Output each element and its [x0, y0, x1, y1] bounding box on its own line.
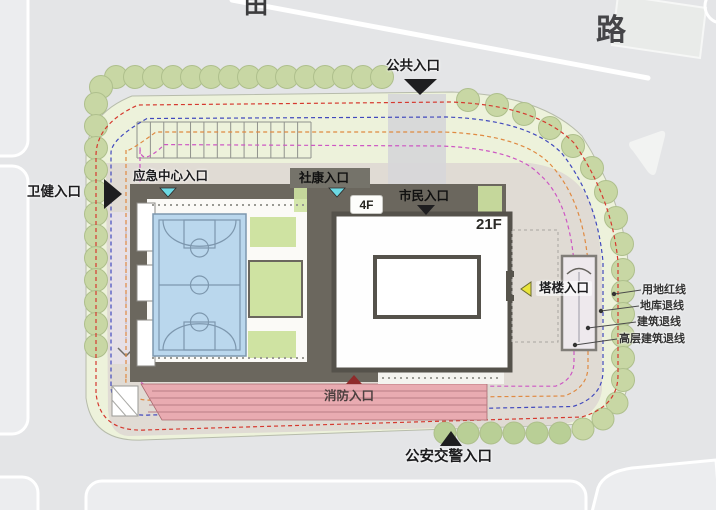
citizen-entrance-label: 市民入口 — [399, 190, 449, 203]
health-entrance-label: 卫健入口 — [27, 185, 81, 199]
fire-entrance-label: 消防入口 — [324, 390, 374, 403]
legend-item-highrise-line: 高层建筑退线 — [619, 334, 685, 345]
public-entrance-label: 公共入口 — [386, 59, 440, 73]
legend-item-red-line: 用地红线 — [642, 285, 686, 296]
corner-ramp — [112, 386, 138, 416]
traffic-island — [629, 131, 665, 175]
police-entrance-label: 公安交警入口 — [405, 450, 492, 465]
legend-item-basement-line: 地库退线 — [640, 301, 684, 312]
basketball-court — [153, 214, 246, 356]
site-plan-drawing — [0, 0, 716, 510]
tower-floor-tag: 21F — [476, 217, 502, 232]
east-ramp — [562, 256, 596, 350]
podium-floor-tag: 4F — [351, 196, 382, 213]
legend-item-building-line: 建筑退线 — [637, 317, 681, 328]
road-name-label: 路 — [596, 16, 626, 46]
tower-core — [375, 257, 479, 317]
public-entrance-path — [388, 94, 446, 184]
site-plan: 路 田 公共入口 卫健入口 应急中心入口 社康入口 市民入口 塔楼入口 消防入口… — [0, 0, 716, 510]
clinic-entrance-label: 社康入口 — [299, 172, 349, 185]
emergency-entrance-label: 应急中心入口 — [133, 170, 208, 183]
road-name-partial-label: 田 — [244, 0, 268, 20]
fire-lane — [112, 384, 487, 420]
tower-entrance-label: 塔楼入口 — [536, 281, 592, 296]
